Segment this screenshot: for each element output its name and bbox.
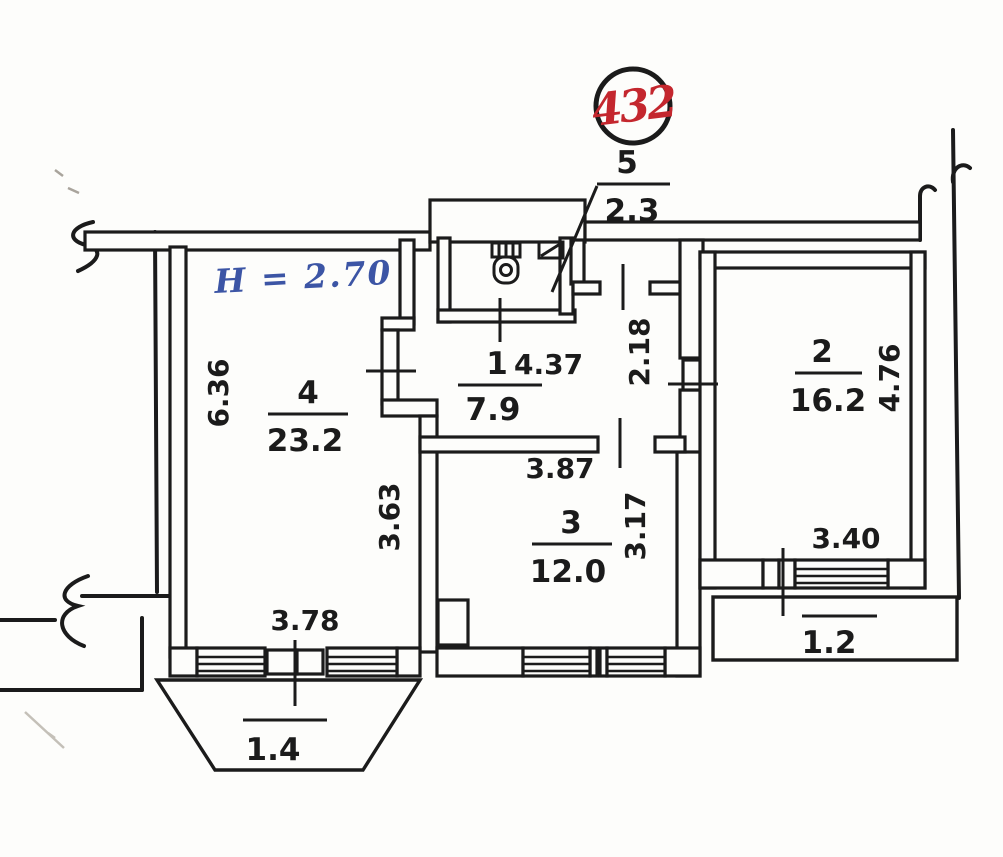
window-room4-right <box>327 648 397 676</box>
wall-room4-right-mid <box>382 330 398 404</box>
bathroom-niche-block <box>430 200 585 242</box>
paper-background <box>0 0 1003 857</box>
room5-area: 2.3 <box>605 193 660 229</box>
room4-balcony-door-leaf-b <box>297 650 323 674</box>
floor-plan-drawing: 432 H = 2.70 5 2.3 1 4.37 7.9 4 23.2 3 1… <box>0 0 1003 857</box>
dim-room1-width: 4.37 <box>514 348 583 381</box>
wall-bottom-solid-c <box>437 648 523 676</box>
window-room3-left <box>523 648 590 676</box>
window-room3-right <box>607 648 665 676</box>
duct-room3 <box>438 600 468 645</box>
dim-room4-window: 3.78 <box>270 604 339 637</box>
room2-balcony-door-leaf-a <box>763 560 779 588</box>
dim-room3-depth: 3.17 <box>619 491 652 560</box>
wall-entry-left <box>573 282 600 294</box>
wall-top-left-span <box>85 232 430 250</box>
room2-number: 2 <box>811 334 833 370</box>
wall-entry-landing <box>571 240 584 284</box>
apartment-number: 432 <box>589 76 679 137</box>
room1-number: 1 <box>486 346 508 382</box>
room3-area: 12.0 <box>530 554 607 590</box>
window-room2 <box>795 560 888 588</box>
dim-room2-window: 3.40 <box>811 522 880 555</box>
room5-number: 5 <box>616 145 638 181</box>
wall-bottom-solid-d <box>665 648 700 676</box>
wall-room4-right-upper <box>400 240 414 324</box>
wall-room2-bottom-solid-right <box>888 560 925 588</box>
dim-room4-inner: 3.63 <box>373 482 406 551</box>
room1-area: 7.9 <box>466 392 521 428</box>
wall-bottom-solid-a <box>170 648 197 676</box>
scanned-floor-plan-page: 432 H = 2.70 5 2.3 1 4.37 7.9 4 23.2 3 1… <box>0 0 1003 857</box>
wall-room2-top <box>700 252 925 268</box>
window-room4-left <box>197 648 265 676</box>
room2-area: 16.2 <box>790 383 867 419</box>
room4-area: 23.2 <box>267 423 344 459</box>
wall-room2-left <box>700 252 715 588</box>
dim-room2-depth: 4.76 <box>873 343 906 412</box>
room2-balcony-door-leaf-b <box>779 560 795 588</box>
dim-room3-width: 3.87 <box>525 452 594 485</box>
dim-room4-depth: 6.36 <box>202 358 235 427</box>
wall-room3-right <box>677 452 700 676</box>
balcony-left-area: 1.4 <box>246 732 301 768</box>
room3-number: 3 <box>560 505 582 541</box>
balcony-right-area: 1.2 <box>802 625 857 661</box>
wall-room2-bottom-solid-left <box>700 560 763 588</box>
wall-room2-right <box>911 252 925 588</box>
room4-balcony-door-leaf-a <box>267 650 297 674</box>
dim-entry-side: 2.18 <box>623 317 656 386</box>
wall-jog-1 <box>382 318 414 330</box>
wall-bathroom-bottom <box>438 310 575 322</box>
wall-bottom-solid-b <box>397 648 420 676</box>
room4-number: 4 <box>297 375 319 411</box>
wall-jog-2 <box>382 400 437 416</box>
wall-room3-top-left <box>420 437 598 452</box>
wall-room3-top-right <box>655 437 685 452</box>
outer-wall-left <box>155 232 157 592</box>
wall-room4-left <box>170 247 186 657</box>
